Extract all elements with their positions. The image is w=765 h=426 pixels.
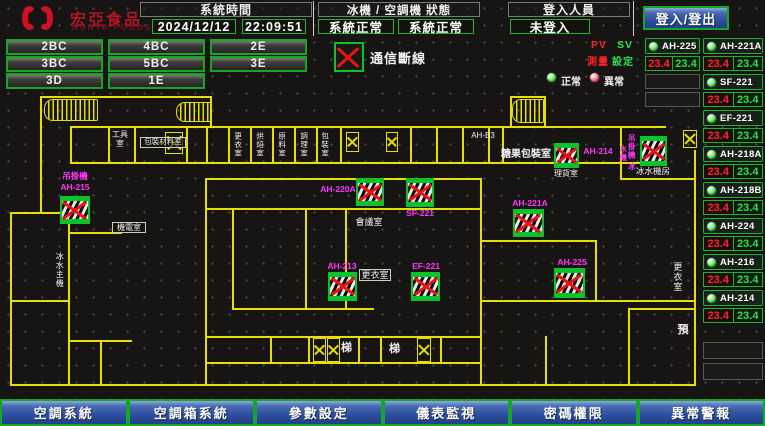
room-label-reserve: 預 bbox=[675, 324, 691, 337]
unit-name: AH-224 bbox=[720, 221, 755, 232]
unit-row-ah-216: AH-216 bbox=[703, 254, 763, 270]
sv-label: SV bbox=[617, 39, 633, 51]
header-divider bbox=[313, 1, 314, 36]
wall-segment bbox=[232, 210, 234, 310]
unit-row-ah-225: AH-225 bbox=[645, 38, 700, 54]
pv-value: 23.4 bbox=[704, 309, 734, 322]
logo-subtitle: HUNYA FOODS bbox=[72, 23, 152, 32]
elevator-x-icon bbox=[313, 338, 326, 362]
map-device-ah-225[interactable] bbox=[554, 268, 585, 298]
status-led-icon bbox=[706, 113, 717, 124]
wall-segment bbox=[40, 96, 212, 98]
pv-value: 23.4 bbox=[704, 201, 734, 214]
empty-slot bbox=[645, 74, 700, 89]
system-time-value: 22:09:51 bbox=[242, 19, 306, 34]
device-label-ah-215-machine: 吊掛機 bbox=[54, 172, 96, 182]
status-led-icon bbox=[706, 293, 717, 304]
floor-button-1e[interactable]: 1E bbox=[108, 73, 205, 89]
wall-segment bbox=[206, 126, 208, 164]
wall-segment bbox=[186, 126, 188, 164]
pv-value: 23.4 bbox=[646, 57, 673, 70]
unit-row-ah-224: AH-224 bbox=[703, 218, 763, 234]
map-device-ah-213[interactable] bbox=[328, 272, 357, 301]
stairs-icon bbox=[512, 99, 544, 123]
sv-value: 23.4 bbox=[734, 93, 763, 106]
status-led-icon bbox=[706, 149, 717, 160]
map-device-ah-214[interactable] bbox=[554, 143, 579, 168]
room-label-stair-a: 梯 bbox=[339, 342, 354, 355]
wall-segment bbox=[134, 126, 136, 164]
sv-value: 23.4 bbox=[734, 237, 763, 250]
comm-loss-x-icon bbox=[334, 42, 364, 72]
room-label-v1: 更衣室 bbox=[233, 129, 242, 161]
map-device-hoist[interactable] bbox=[640, 136, 667, 166]
unit-values-ah-218a: 23.423.4 bbox=[703, 164, 763, 179]
map-device-ah-215[interactable] bbox=[60, 196, 90, 224]
bottom-button-password[interactable]: 密碼權限 bbox=[510, 399, 638, 426]
unit-values-ah-224: 23.423.4 bbox=[703, 236, 763, 251]
sv-value: 23.4 bbox=[734, 201, 763, 214]
logo-left-shape bbox=[22, 6, 37, 30]
wall-segment bbox=[205, 178, 482, 180]
room-label-mech: 機電室 bbox=[112, 222, 146, 233]
wall-segment bbox=[305, 210, 307, 308]
status-led-icon bbox=[706, 185, 717, 196]
pv-value: 23.4 bbox=[704, 129, 734, 142]
wall-segment bbox=[504, 126, 666, 128]
pv-label: PV bbox=[591, 39, 607, 51]
bottom-button-alarms[interactable]: 異常警報 bbox=[638, 399, 765, 426]
wall-segment bbox=[205, 208, 482, 210]
room-label-tool: 工具室 bbox=[109, 130, 131, 148]
wall-segment bbox=[358, 336, 360, 364]
device-label-ah-215: AH-215 bbox=[54, 183, 96, 193]
room-label-sorting: 理貨室 bbox=[548, 169, 584, 178]
sv-value: 23.4 bbox=[734, 57, 763, 70]
unit-values-ah-221a: 23.423.4 bbox=[703, 56, 763, 71]
hmi-screen: 宏亞食品 HUNYA FOODS 系統時間 2024/12/12 22:09:5… bbox=[0, 0, 765, 426]
room-label-storage: 包裝材料室 bbox=[140, 137, 186, 148]
unit-values-ah-216: 23.423.4 bbox=[703, 272, 763, 287]
room-label-ah-b3: AH-B3 bbox=[468, 131, 498, 140]
room-label-chiller-main: 冰水主機 bbox=[55, 252, 64, 288]
pv-value: 23.4 bbox=[704, 165, 734, 178]
wall-segment bbox=[294, 126, 296, 164]
room-label-stair-b: 梯 bbox=[387, 343, 402, 356]
sv-value: 23.4 bbox=[673, 57, 699, 70]
unit-values-ah-218b: 23.423.4 bbox=[703, 200, 763, 215]
floor-button-3e[interactable]: 3E bbox=[210, 56, 307, 72]
floor-button-3d[interactable]: 3D bbox=[6, 73, 103, 89]
pv-caption: 測量 bbox=[587, 53, 609, 68]
wall-segment bbox=[410, 126, 412, 164]
wall-segment bbox=[628, 308, 630, 386]
elevator-x-icon bbox=[386, 132, 398, 152]
wall-segment bbox=[436, 126, 438, 164]
unit-name: AH-214 bbox=[720, 293, 755, 304]
device-label-ah-225: AH-225 bbox=[556, 258, 588, 268]
sv-value: 23.4 bbox=[734, 273, 763, 286]
floor-button-4bc[interactable]: 4BC bbox=[108, 39, 205, 55]
unit-name: AH-218A bbox=[720, 149, 762, 160]
wall-segment bbox=[68, 212, 70, 384]
bottom-button-parameters[interactable]: 參數設定 bbox=[255, 399, 383, 426]
normal-label: 正常 bbox=[561, 73, 581, 88]
status-led-icon bbox=[706, 221, 717, 232]
login-user-label: 登入人員 bbox=[508, 2, 630, 17]
wall-segment bbox=[340, 126, 342, 164]
sv-value: 23.4 bbox=[734, 309, 763, 322]
wall-segment bbox=[308, 336, 310, 364]
wall-segment bbox=[462, 126, 464, 164]
map-device-sf-221[interactable] bbox=[406, 178, 434, 207]
wall-segment bbox=[545, 336, 547, 386]
device-label-ef-221: EF-221 bbox=[410, 262, 442, 272]
status-led-icon bbox=[648, 41, 659, 52]
unit-name: AH-218B bbox=[720, 185, 762, 196]
status-led-icon bbox=[706, 77, 717, 88]
stairs-icon bbox=[176, 102, 212, 122]
wall-segment bbox=[232, 308, 374, 310]
wall-segment bbox=[544, 96, 546, 128]
status-led-icon bbox=[706, 41, 717, 52]
normal-led-icon bbox=[546, 72, 557, 83]
hunya-logo-icon bbox=[22, 4, 64, 34]
abnormal-label: 異常 bbox=[604, 73, 624, 88]
elevator-x-icon bbox=[346, 132, 359, 152]
sv-value: 23.4 bbox=[734, 165, 763, 178]
wall-segment bbox=[694, 150, 696, 386]
room-label-v4: 調理室 bbox=[299, 129, 308, 161]
login-logout-button[interactable]: 登入/登出 bbox=[643, 6, 729, 30]
unit-row-ah-218a: AH-218A bbox=[703, 146, 763, 162]
machine-status-label: 冰機 / 空調機 狀態 bbox=[318, 2, 480, 17]
floor-button-2e[interactable]: 2E bbox=[210, 39, 307, 55]
map-device-ah-221a[interactable] bbox=[513, 209, 544, 237]
wall-segment bbox=[250, 126, 252, 164]
stairs-icon bbox=[44, 99, 98, 121]
wall-segment bbox=[440, 336, 442, 364]
wall-segment bbox=[480, 178, 482, 386]
unit-name: EF-221 bbox=[720, 113, 753, 124]
unit-name: AH-216 bbox=[720, 257, 755, 268]
device-label-ah-220a: AH-220A bbox=[320, 185, 356, 195]
empty-slot bbox=[645, 92, 700, 107]
wall-segment bbox=[100, 340, 102, 384]
login-user-value: 未登入 bbox=[510, 19, 590, 34]
pv-value: 23.4 bbox=[704, 57, 734, 70]
floor-button-3bc[interactable]: 3BC bbox=[6, 56, 103, 72]
elevator-x-icon bbox=[683, 130, 697, 148]
wall-segment bbox=[510, 96, 546, 98]
wall-segment bbox=[380, 336, 382, 364]
pv-value: 23.4 bbox=[704, 237, 734, 250]
comm-loss-label: 通信斷線 bbox=[370, 48, 426, 67]
room-label-chiller-room: 冰水機房 bbox=[632, 167, 674, 177]
wall-segment bbox=[480, 240, 597, 242]
system-date-value: 2024/12/12 bbox=[152, 19, 236, 34]
room-label-meeting: 會議室 bbox=[349, 217, 389, 227]
device-label-ah-214: AH-214 bbox=[581, 147, 615, 157]
empty-slot bbox=[703, 342, 763, 359]
wall-segment bbox=[270, 336, 272, 364]
sv-caption: 設定 bbox=[612, 53, 634, 68]
bottom-bar: 空調系統 空調箱系統 參數設定 儀表監視 密碼權限 異常警報 bbox=[0, 399, 765, 426]
pv-value: 23.4 bbox=[704, 273, 734, 286]
bottom-button-ahu-system[interactable]: 空調箱系統 bbox=[128, 399, 256, 426]
map-device-ah-220a[interactable] bbox=[356, 178, 384, 206]
unit-name: AH-225 bbox=[662, 41, 697, 52]
wall-segment bbox=[272, 126, 274, 164]
bottom-button-meters[interactable]: 儀表監視 bbox=[383, 399, 511, 426]
device-label-ah-213: AH-213 bbox=[326, 262, 358, 272]
wall-segment bbox=[628, 308, 696, 310]
sv-value: 23.4 bbox=[734, 129, 763, 142]
abnormal-led-icon bbox=[589, 72, 600, 83]
room-label-v5: 包裝室 bbox=[320, 129, 329, 161]
ac-status-value: 系統正常 bbox=[398, 19, 474, 34]
elevator-x-icon bbox=[417, 338, 431, 362]
unit-values-ah-214: 23.423.4 bbox=[703, 308, 763, 323]
floor-button-2bc[interactable]: 2BC bbox=[6, 39, 103, 55]
unit-name: AH-221A bbox=[720, 41, 762, 52]
wall-segment bbox=[595, 240, 597, 302]
empty-slot bbox=[703, 363, 763, 380]
room-label-locker-a: 更衣室 bbox=[359, 269, 391, 281]
room-label-candy: 糖果包裝室 bbox=[499, 149, 553, 161]
system-time-label: 系統時間 bbox=[140, 2, 312, 17]
wall-segment bbox=[228, 126, 230, 164]
device-label-ah-221a: AH-221A bbox=[510, 199, 550, 209]
chiller-status-value: 系統正常 bbox=[318, 19, 394, 34]
unit-name: SF-221 bbox=[720, 77, 753, 88]
pv-value: 23.4 bbox=[704, 93, 734, 106]
header-divider bbox=[633, 1, 634, 36]
wall-segment bbox=[10, 300, 68, 302]
room-label-v2: 烘焙室 bbox=[255, 129, 264, 161]
bottom-button-ac-system[interactable]: 空調系統 bbox=[0, 399, 128, 426]
floor-button-5bc[interactable]: 5BC bbox=[108, 56, 205, 72]
wall-segment bbox=[70, 126, 72, 164]
map-device-ef-221[interactable] bbox=[411, 272, 440, 301]
unit-row-ah-214: AH-214 bbox=[703, 290, 763, 306]
wall-segment bbox=[316, 126, 318, 164]
unit-row-ef-221: EF-221 bbox=[703, 110, 763, 126]
unit-values-ef-221: 23.423.4 bbox=[703, 128, 763, 143]
unit-row-ah-221a: AH-221A bbox=[703, 38, 763, 54]
room-label-locker-b: 更衣室 bbox=[672, 260, 682, 294]
wall-segment bbox=[10, 384, 696, 386]
wall-segment bbox=[40, 96, 42, 214]
wall-segment bbox=[620, 178, 696, 180]
unit-row-sf-221: SF-221 bbox=[703, 74, 763, 90]
unit-values-sf-221: 23.423.4 bbox=[703, 92, 763, 107]
device-label-sf-221: SF-221 bbox=[404, 209, 436, 219]
unit-values-ah-225: 23.4 23.4 bbox=[645, 56, 700, 71]
wall-segment bbox=[480, 300, 696, 302]
unit-row-ah-218b: AH-218B bbox=[703, 182, 763, 198]
wall-segment bbox=[10, 212, 12, 386]
status-led-icon bbox=[706, 257, 717, 268]
logo-right-shape bbox=[38, 6, 53, 30]
room-label-v3: 原料室 bbox=[277, 129, 286, 161]
